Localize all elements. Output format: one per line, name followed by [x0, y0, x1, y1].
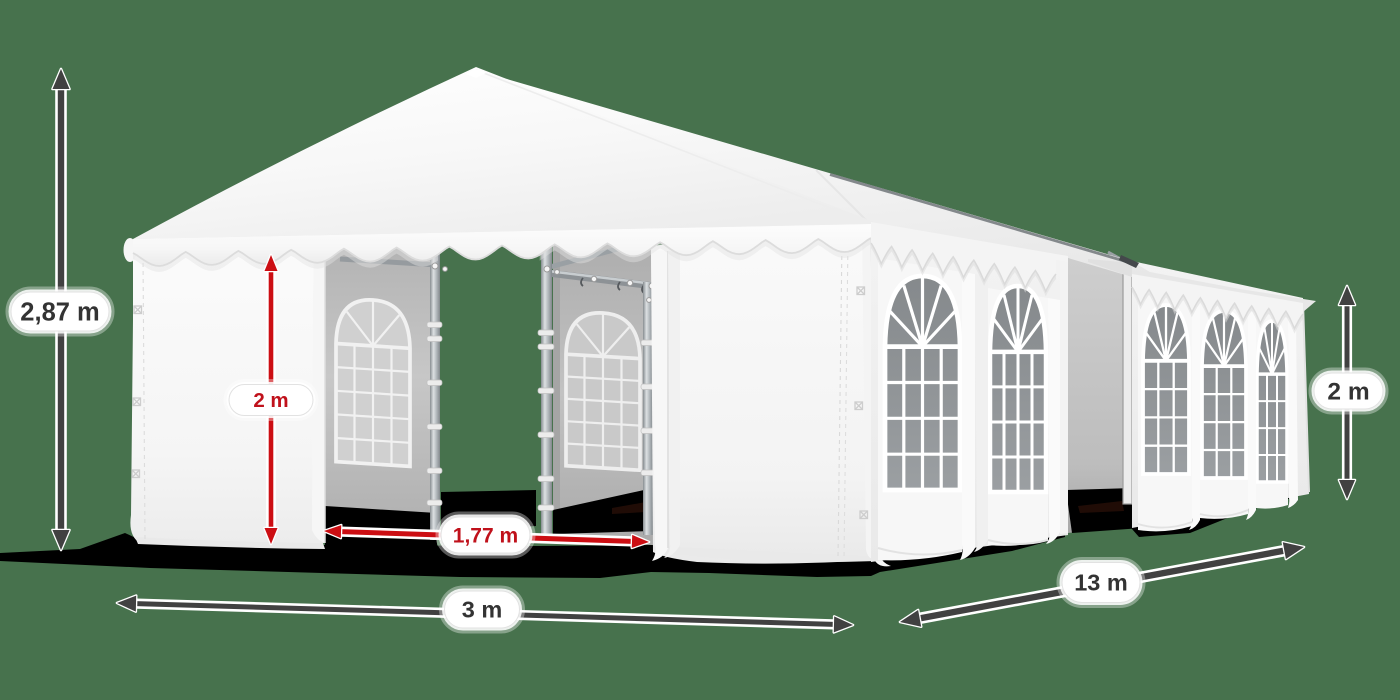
svg-text:3 m: 3 m [462, 597, 503, 623]
svg-text:13 m: 13 m [1074, 570, 1128, 596]
svg-text:2 m: 2 m [253, 389, 288, 412]
svg-text:2,87 m: 2,87 m [20, 298, 99, 326]
svg-text:1,77 m: 1,77 m [453, 524, 518, 547]
svg-text:2 m: 2 m [1327, 379, 1369, 406]
